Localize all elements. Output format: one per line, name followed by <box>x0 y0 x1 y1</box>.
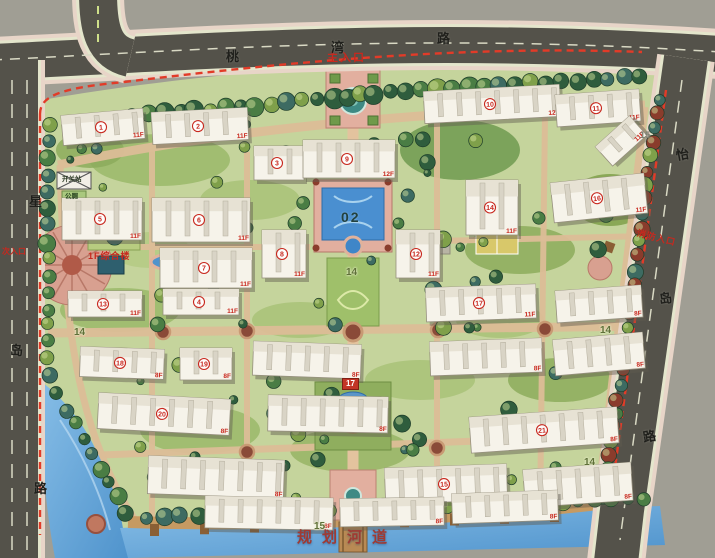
roof-band <box>466 180 518 197</box>
tree-highlight <box>471 278 476 283</box>
tree <box>401 189 414 202</box>
roof-unit <box>82 294 87 311</box>
tree-highlight <box>42 186 48 192</box>
floor-label: 8F <box>634 310 642 318</box>
floor-label: 11F <box>240 281 251 288</box>
roof-unit <box>215 292 220 309</box>
tree-highlight <box>173 359 180 366</box>
building-number: 19 <box>200 362 208 369</box>
tree-highlight <box>618 70 625 77</box>
tree <box>288 216 302 230</box>
roof-unit <box>257 462 263 491</box>
building-number: 20 <box>158 411 166 418</box>
roof-unit <box>343 347 349 372</box>
tree <box>456 243 465 252</box>
tree-highlight <box>592 243 599 250</box>
tree-highlight <box>239 320 243 324</box>
garden-circle <box>87 515 105 533</box>
tree-highlight <box>266 99 273 106</box>
floor-label: 11F <box>133 131 144 139</box>
roof-unit <box>339 399 344 426</box>
tree <box>397 83 414 100</box>
floor-label: 11F <box>130 233 141 240</box>
site-plan: 111F 211F 3 912F 1012F 1111F11F 511F 611… <box>0 0 715 558</box>
intersection-plaza <box>430 441 444 455</box>
roof-unit <box>305 346 311 371</box>
tree-highlight <box>642 168 647 173</box>
building-number: 7 <box>202 266 206 273</box>
roof-unit <box>114 201 119 234</box>
tree-highlight <box>655 96 660 101</box>
building: 1311F <box>68 291 145 321</box>
tree-highlight <box>44 288 49 293</box>
roof-unit <box>295 233 300 272</box>
tree-highlight <box>402 446 406 450</box>
tree-highlight <box>430 81 439 90</box>
tree <box>570 74 587 91</box>
tree <box>364 85 383 104</box>
tree <box>295 92 309 106</box>
central-pool <box>322 188 384 240</box>
floor-label: 8F <box>610 436 618 444</box>
building: 8F <box>147 456 287 503</box>
tree <box>398 132 413 147</box>
roof-unit <box>482 343 488 368</box>
tree-highlight <box>42 218 49 225</box>
roof-unit <box>417 470 423 497</box>
roof-unit <box>212 251 217 282</box>
floor-label: 11F <box>237 133 248 141</box>
tree <box>643 148 658 163</box>
roof-unit <box>513 90 519 113</box>
roof-unit <box>149 398 155 425</box>
tree <box>393 218 404 229</box>
tree-highlight <box>173 509 180 516</box>
tree <box>601 447 617 463</box>
tree-highlight <box>158 510 166 518</box>
building-number: 8 <box>280 252 284 259</box>
tree <box>384 84 398 98</box>
roof-unit <box>456 93 462 116</box>
roof-unit <box>295 500 300 523</box>
floor-label: 11F <box>130 310 141 317</box>
tree-highlight <box>321 436 325 440</box>
tree-highlight <box>136 442 141 447</box>
tree <box>40 216 55 231</box>
floor-label: 11F <box>635 206 647 214</box>
tree-highlight <box>652 107 658 113</box>
roof-band <box>180 348 232 358</box>
roof-unit <box>287 149 292 174</box>
tree <box>39 150 55 166</box>
axis-fountain <box>344 237 362 255</box>
tree <box>43 117 58 132</box>
tree-highlight <box>247 100 256 109</box>
building-number: 6 <box>197 218 201 225</box>
tree-highlight <box>414 434 420 440</box>
tree-highlight <box>142 514 147 519</box>
tree-highlight <box>633 71 640 78</box>
tree <box>39 200 55 216</box>
tree <box>394 415 411 432</box>
roof-unit <box>474 468 480 495</box>
building: 1711F <box>425 284 539 326</box>
roof-unit <box>282 398 287 425</box>
tree-highlight <box>312 454 319 461</box>
tree-highlight <box>629 266 636 273</box>
roof-unit <box>162 459 168 488</box>
roof-unit <box>187 400 193 427</box>
tree-highlight <box>289 218 295 224</box>
roof-unit <box>497 288 503 313</box>
building: 8F <box>553 332 649 380</box>
tree <box>469 134 483 148</box>
roof-unit <box>354 502 359 521</box>
roof-unit <box>475 92 481 115</box>
roof-unit <box>463 344 469 369</box>
building-number: 1 <box>99 125 104 132</box>
tree-highlight <box>87 449 92 454</box>
tree <box>649 122 661 134</box>
tree <box>211 176 223 188</box>
tree <box>140 512 152 524</box>
tree <box>311 92 324 105</box>
tree <box>60 404 74 418</box>
roof-unit <box>165 115 171 138</box>
tree-highlight <box>634 236 639 241</box>
roof-unit <box>399 470 405 497</box>
tree-highlight <box>524 75 531 82</box>
tree <box>631 248 644 261</box>
tree <box>633 234 645 246</box>
roof-unit <box>231 251 236 282</box>
building-number: 21 <box>538 427 546 435</box>
tree-highlight <box>236 101 242 107</box>
plan-drawing: 111F 211F 3 912F 1012F 1111F11F 511F 611… <box>0 0 715 558</box>
tree-highlight <box>40 237 48 245</box>
roof-unit <box>336 143 341 172</box>
roundabout-plaza <box>344 323 362 341</box>
tree-highlight <box>51 388 57 394</box>
roof-unit <box>132 351 138 372</box>
tree-highlight <box>394 219 399 224</box>
roof-unit <box>499 183 504 229</box>
roof-unit <box>374 143 379 172</box>
floor-label: 8F <box>636 361 644 369</box>
building-number: 18 <box>116 360 124 367</box>
tree <box>135 441 146 452</box>
tree-highlight <box>368 257 372 261</box>
tree <box>43 305 55 317</box>
tree-highlight <box>44 136 50 142</box>
tree-highlight <box>80 435 85 440</box>
tree-highlight <box>445 82 452 89</box>
tree-highlight <box>502 403 510 411</box>
tree-highlight <box>645 149 652 156</box>
tree-highlight <box>629 279 635 285</box>
tree <box>40 185 54 199</box>
floor-label: 8F <box>223 373 231 380</box>
building-number: 10 <box>486 101 494 108</box>
complex-building-roof <box>98 256 124 274</box>
roof-unit <box>184 114 190 137</box>
building: 8F <box>268 395 392 437</box>
roof-unit <box>317 143 322 172</box>
roof-unit <box>501 342 507 367</box>
roof-unit <box>94 350 100 371</box>
building-number: 13 <box>99 302 107 309</box>
building: 8F <box>452 490 562 528</box>
floor-label: 8F <box>324 523 332 530</box>
building: 8F <box>429 338 545 380</box>
tree-highlight <box>71 418 77 424</box>
plaza-planter <box>368 74 378 83</box>
building-number: 11 <box>592 105 600 113</box>
roof-unit <box>238 499 243 522</box>
tree <box>43 135 56 148</box>
building: 188F <box>79 347 167 384</box>
tree-highlight <box>315 299 319 303</box>
tree <box>50 387 63 400</box>
roof-unit <box>314 501 319 524</box>
tree <box>43 270 57 284</box>
roof-unit <box>515 288 521 313</box>
tree <box>117 505 133 521</box>
building-number: 15 <box>440 482 448 489</box>
tree <box>150 317 165 332</box>
tree <box>489 270 502 283</box>
tree <box>632 69 647 84</box>
building-number: 9 <box>345 157 349 164</box>
tree-highlight <box>617 381 623 387</box>
roof-unit <box>177 292 182 309</box>
roof-unit <box>324 347 330 372</box>
tree-highlight <box>341 91 349 99</box>
tree-highlight <box>219 100 226 107</box>
tree-highlight <box>478 80 486 88</box>
floor-label: 11F <box>428 271 439 278</box>
roof-unit <box>200 460 206 489</box>
roof-unit <box>444 344 450 369</box>
tree-highlight <box>41 352 47 358</box>
tree-highlight <box>296 94 302 100</box>
tree-highlight <box>385 86 391 92</box>
building-number: 14 <box>486 205 494 212</box>
tree-highlight <box>327 90 336 99</box>
roof-unit <box>185 201 190 236</box>
roof-unit <box>168 399 174 426</box>
roof-unit <box>373 501 378 520</box>
roof-unit <box>76 201 81 234</box>
roof-unit <box>111 396 117 423</box>
roof-unit <box>257 500 262 523</box>
tree-highlight <box>44 306 49 311</box>
roof-unit <box>174 251 179 282</box>
roof-unit <box>151 352 157 373</box>
tree <box>239 319 248 328</box>
floor-label: 11F <box>506 228 517 235</box>
roof-unit <box>320 399 325 426</box>
tree-highlight <box>539 78 546 85</box>
tree-highlight <box>623 323 628 328</box>
tree <box>69 416 82 429</box>
tree-highlight <box>95 463 103 471</box>
roof-unit <box>206 401 212 428</box>
tree <box>590 241 607 258</box>
roof-band <box>62 198 142 211</box>
roof-unit <box>238 462 244 491</box>
tree-highlight <box>650 123 655 128</box>
tree <box>67 156 74 163</box>
roof-unit <box>485 496 491 517</box>
building-number: 4 <box>197 300 201 307</box>
tree-highlight <box>588 73 595 80</box>
roof-unit <box>213 351 218 374</box>
tree-highlight <box>112 489 120 497</box>
deck-planter <box>385 245 392 252</box>
tree <box>609 393 623 407</box>
tree-highlight <box>480 238 484 242</box>
intersection-plaza <box>538 322 552 336</box>
tree-highlight <box>425 170 428 173</box>
tree-highlight <box>491 271 497 277</box>
pier <box>150 524 159 536</box>
roof-unit <box>532 89 538 112</box>
tree-highlight <box>279 94 287 102</box>
tree-highlight <box>44 271 50 277</box>
building: 511F <box>62 198 145 244</box>
lawn-patch <box>400 120 520 180</box>
building-number: 16 <box>593 195 602 203</box>
building: 211F <box>151 107 252 148</box>
tree <box>110 488 127 505</box>
tree-highlight <box>508 79 516 87</box>
tree <box>654 94 665 105</box>
tree-highlight <box>41 202 48 209</box>
roof-unit <box>242 201 247 236</box>
tree-highlight <box>330 319 336 325</box>
building-number: 12 <box>412 252 420 259</box>
tree <box>42 334 55 347</box>
tree-highlight <box>61 406 67 412</box>
roof-unit <box>276 500 281 523</box>
tree <box>171 507 187 523</box>
tree <box>311 452 326 467</box>
roof-unit <box>286 345 292 370</box>
tree-highlight <box>41 151 48 158</box>
tree-highlight <box>44 369 51 376</box>
roof-unit <box>301 399 306 426</box>
tree-highlight <box>402 190 408 196</box>
roof-unit <box>130 397 136 424</box>
building: 198F <box>180 348 235 384</box>
tree-highlight <box>44 119 51 126</box>
tree <box>650 106 664 120</box>
roof-unit <box>276 463 282 492</box>
tree-highlight <box>354 87 361 94</box>
tree <box>622 322 633 333</box>
building-number: 2 <box>196 124 200 131</box>
floor-label: 8F <box>436 518 444 525</box>
floor-label: 11F <box>227 308 238 315</box>
tree-highlight <box>639 494 645 500</box>
roof-unit <box>466 496 472 517</box>
tree-highlight <box>212 178 217 183</box>
tree-highlight <box>408 445 414 451</box>
roof-unit <box>219 499 224 522</box>
roof-unit <box>267 345 273 370</box>
building-number: 3 <box>275 161 279 168</box>
tree <box>420 154 436 170</box>
roof-unit <box>166 201 171 236</box>
tree <box>314 298 324 308</box>
tree <box>297 196 310 209</box>
floor-label: 11F <box>294 271 305 278</box>
tree-highlight <box>399 85 407 93</box>
roof-unit <box>504 495 510 516</box>
tree <box>617 68 633 84</box>
tree <box>41 169 55 183</box>
roof-unit <box>133 201 138 234</box>
tree <box>600 73 613 86</box>
tree-highlight <box>152 319 159 326</box>
roof-unit <box>440 290 446 315</box>
roof-unit <box>203 113 209 136</box>
tree <box>43 251 56 264</box>
tree <box>42 287 54 299</box>
roof-band <box>254 146 304 156</box>
tree <box>470 277 480 287</box>
tree <box>615 379 627 391</box>
roof-unit <box>437 94 443 117</box>
building-number: 5 <box>98 217 102 224</box>
roof-unit <box>523 494 529 515</box>
tree-highlight <box>632 249 638 255</box>
building: 811F <box>262 230 309 282</box>
roof-unit <box>459 290 465 315</box>
floor-label: 11F <box>524 311 535 318</box>
roof-unit <box>430 500 435 519</box>
tree-highlight <box>312 94 318 100</box>
tree-highlight <box>104 477 109 482</box>
tree <box>637 493 650 506</box>
floor-label: 11F <box>238 235 249 242</box>
tree-highlight <box>156 290 162 296</box>
tree <box>42 367 58 383</box>
tree-highlight <box>534 213 540 219</box>
roof-unit <box>392 501 397 520</box>
intersection-plaza <box>240 445 254 459</box>
floor-label: 8F <box>379 426 387 433</box>
tree-highlight <box>421 156 428 163</box>
roof-unit <box>429 233 434 272</box>
tree-highlight <box>119 507 126 514</box>
deck-planter <box>313 245 320 252</box>
tree-highlight <box>462 79 471 88</box>
tree <box>86 447 98 459</box>
building: 411F <box>163 289 242 319</box>
roof-unit <box>455 468 461 495</box>
tree <box>79 433 90 444</box>
building: 1211F <box>396 230 443 282</box>
tree-highlight <box>492 78 499 85</box>
tree-highlight <box>100 184 104 188</box>
floor-label: 8F <box>624 493 632 501</box>
roof-unit <box>411 501 416 520</box>
floor-label: 8F <box>352 372 360 379</box>
roof-unit <box>223 201 228 236</box>
tree <box>277 93 295 111</box>
